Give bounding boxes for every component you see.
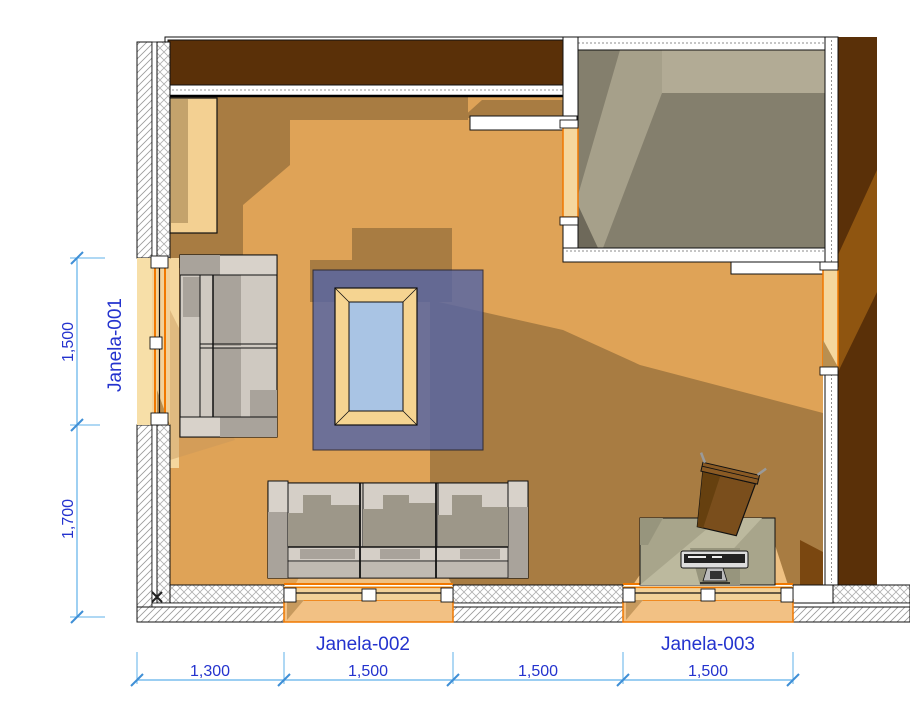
- window-janela-003[interactable]: [623, 584, 793, 622]
- window-right-wall[interactable]: [820, 262, 838, 375]
- coffee-table[interactable]: [335, 288, 417, 425]
- label-janela-002[interactable]: Janela-002: [316, 634, 410, 655]
- window-interior-partition[interactable]: [560, 120, 578, 225]
- dimension-horizontal[interactable]: 1,300 1,500 1,500 1,500 Janela-002 Janel…: [131, 634, 799, 686]
- dim-vertical-1700[interactable]: 1,700: [60, 499, 77, 539]
- dim-vertical-1500[interactable]: 1,500: [60, 322, 77, 362]
- wall-top[interactable]: [165, 37, 578, 96]
- floorplan-canvas[interactable]: 1,500 1,700 Janela-001 1,300 1,500 1,500…: [0, 0, 910, 722]
- cabinet[interactable]: [170, 98, 217, 233]
- wall-bottom[interactable]: [137, 585, 910, 622]
- window-janela-001[interactable]: [137, 256, 170, 425]
- window-janela-002[interactable]: [284, 584, 453, 622]
- label-janela-003[interactable]: Janela-003: [661, 634, 755, 655]
- dimension-vertical[interactable]: 1,500 1,700 Janela-001: [60, 252, 126, 623]
- label-janela-001[interactable]: Janela-001: [105, 298, 126, 392]
- dim-horizontal-1500-b[interactable]: 1,500: [518, 663, 558, 680]
- dim-horizontal-1500-c[interactable]: 1,500: [688, 663, 728, 680]
- dim-horizontal-1500-a[interactable]: 1,500: [348, 663, 388, 680]
- wall-exterior-right-band: [838, 37, 877, 585]
- three-seat-sofa[interactable]: [268, 481, 528, 578]
- loveseat-sofa[interactable]: [180, 255, 277, 437]
- dim-horizontal-1300[interactable]: 1,300: [190, 663, 230, 680]
- adjacent-room-floor: [578, 50, 827, 248]
